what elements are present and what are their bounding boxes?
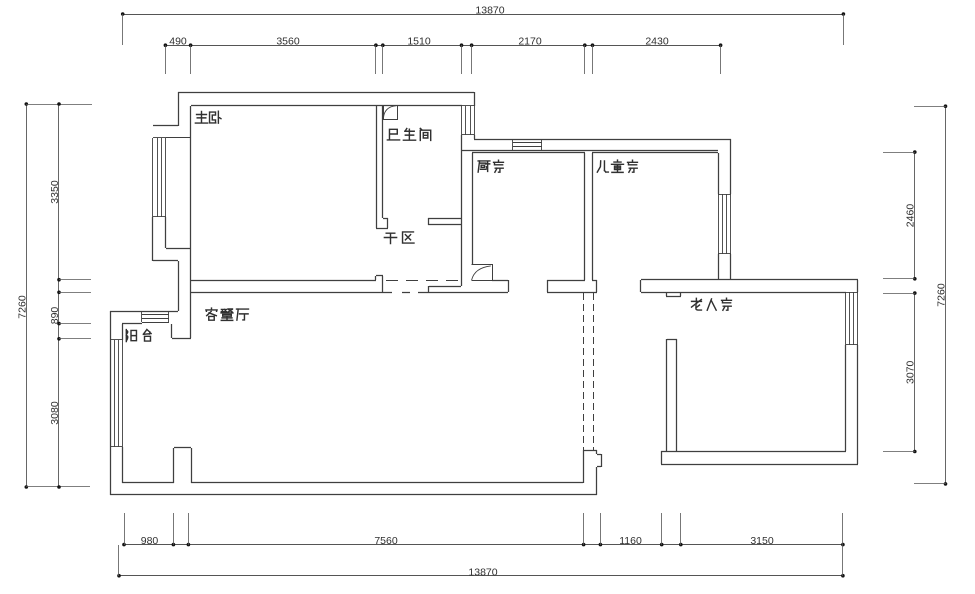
svg-text:3080: 3080 bbox=[49, 401, 61, 425]
svg-text:13870: 13870 bbox=[468, 566, 497, 578]
svg-text:7560: 7560 bbox=[374, 535, 398, 547]
svg-text:1510: 1510 bbox=[407, 35, 431, 47]
svg-text:2430: 2430 bbox=[645, 35, 669, 47]
svg-text:3560: 3560 bbox=[276, 35, 300, 47]
svg-text:13870: 13870 bbox=[475, 4, 504, 16]
svg-text:3150: 3150 bbox=[750, 535, 774, 547]
svg-text:7260: 7260 bbox=[16, 295, 28, 319]
svg-text:1160: 1160 bbox=[619, 535, 642, 547]
svg-text:890: 890 bbox=[49, 307, 61, 325]
svg-text:7260: 7260 bbox=[935, 283, 947, 307]
svg-text:490: 490 bbox=[169, 35, 187, 47]
svg-text:2170: 2170 bbox=[518, 35, 542, 47]
svg-text:3070: 3070 bbox=[905, 360, 917, 384]
svg-text:980: 980 bbox=[141, 535, 159, 547]
svg-text:2460: 2460 bbox=[905, 204, 917, 228]
svg-text:3350: 3350 bbox=[49, 180, 61, 204]
